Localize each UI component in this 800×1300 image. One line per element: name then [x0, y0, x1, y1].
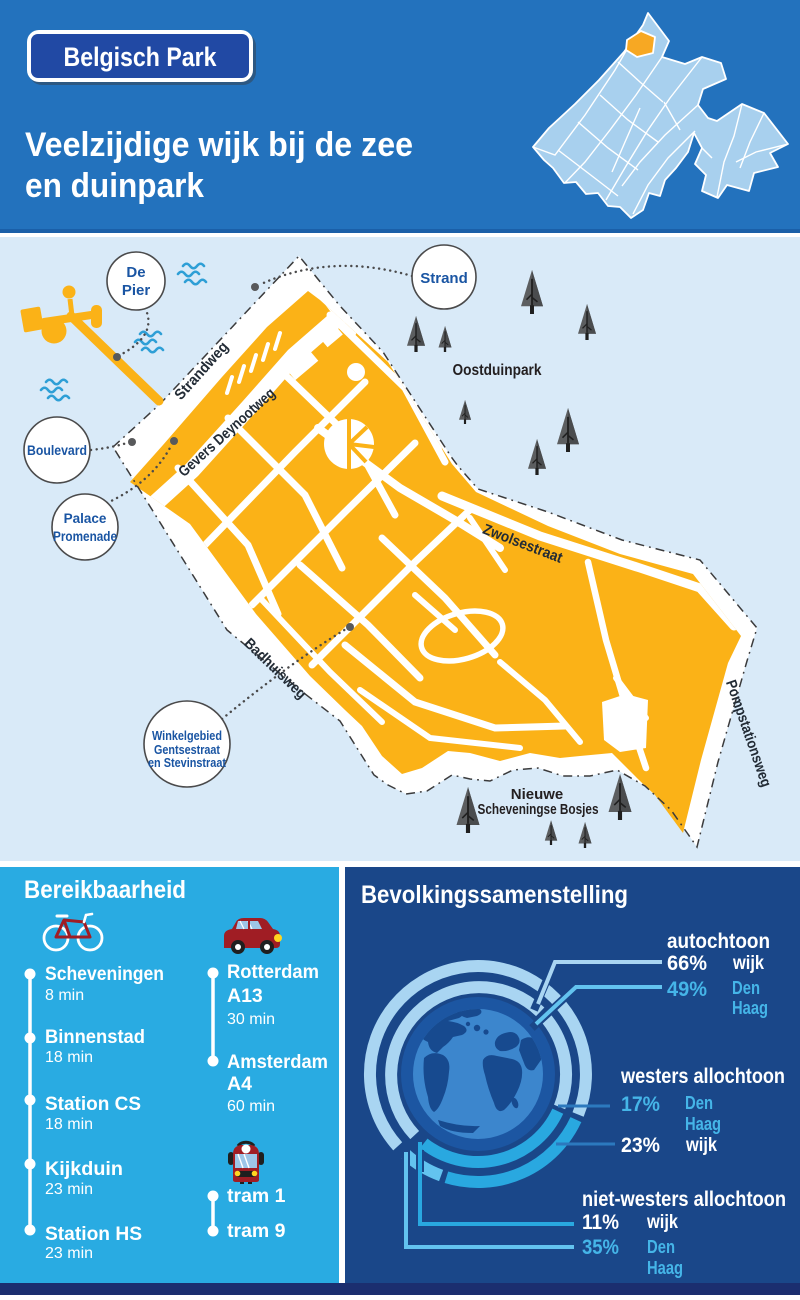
svg-text:17%: 17%: [621, 1093, 660, 1116]
svg-text:23%: 23%: [621, 1134, 660, 1157]
svg-text:westers allochtoon: westers allochtoon: [620, 1065, 785, 1088]
svg-text:23 min: 23 min: [45, 1245, 93, 1262]
svg-text:Palace: Palace: [64, 511, 107, 526]
svg-text:niet-westers allochtoon: niet-westers allochtoon: [582, 1188, 786, 1211]
svg-text:Station HS: Station HS: [45, 1223, 142, 1245]
svg-text:Den: Den: [732, 978, 760, 998]
svg-text:wijk: wijk: [646, 1212, 678, 1233]
svg-text:Rotterdam: Rotterdam: [227, 961, 319, 983]
svg-text:Haag: Haag: [685, 1114, 721, 1134]
svg-text:en Stevinstraat: en Stevinstraat: [148, 755, 227, 770]
svg-text:Bereikbaarheid: Bereikbaarheid: [24, 876, 186, 904]
svg-text:18 min: 18 min: [45, 1116, 93, 1133]
svg-text:A4: A4: [227, 1073, 252, 1095]
svg-text:49%: 49%: [667, 978, 707, 1001]
svg-text:wijk: wijk: [685, 1135, 717, 1156]
svg-text:Kijkduin: Kijkduin: [45, 1158, 123, 1180]
svg-text:60 min: 60 min: [227, 1098, 275, 1115]
svg-text:De: De: [126, 264, 145, 281]
svg-text:A13: A13: [227, 985, 263, 1007]
svg-text:Bevolkingssamenstelling: Bevolkingssamenstelling: [361, 881, 628, 909]
svg-text:Veelzijdige wijk bij de zee: Veelzijdige wijk bij de zee: [25, 126, 413, 164]
svg-text:Station CS: Station CS: [45, 1093, 141, 1115]
svg-text:wijk: wijk: [732, 953, 764, 974]
svg-text:Den: Den: [647, 1237, 675, 1257]
svg-text:Strand: Strand: [420, 270, 468, 287]
svg-text:30 min: 30 min: [227, 1011, 275, 1028]
svg-text:Amsterdam: Amsterdam: [227, 1051, 328, 1073]
svg-text:Belgisch Park: Belgisch Park: [64, 42, 218, 72]
svg-text:Scheveningse Bosjes: Scheveningse Bosjes: [478, 801, 599, 818]
svg-text:Scheveningen: Scheveningen: [45, 963, 164, 985]
svg-text:Den: Den: [685, 1093, 713, 1113]
svg-text:11%: 11%: [582, 1211, 619, 1234]
svg-text:autochtoon: autochtoon: [667, 930, 770, 953]
svg-text:Winkelgebied: Winkelgebied: [152, 728, 222, 743]
svg-text:Promenade: Promenade: [53, 529, 117, 544]
svg-text:66%: 66%: [667, 952, 707, 975]
svg-text:35%: 35%: [582, 1236, 619, 1259]
svg-text:Haag: Haag: [647, 1258, 683, 1278]
svg-text:23 min: 23 min: [45, 1181, 93, 1198]
svg-text:tram 9: tram 9: [227, 1220, 286, 1242]
svg-text:Pier: Pier: [122, 282, 151, 299]
svg-text:Boulevard: Boulevard: [27, 442, 87, 458]
svg-text:Haag: Haag: [732, 998, 768, 1018]
svg-text:Binnenstad: Binnenstad: [45, 1026, 145, 1048]
svg-text:8 min: 8 min: [45, 987, 84, 1004]
svg-text:tram 1: tram 1: [227, 1185, 286, 1207]
svg-text:en duinpark: en duinpark: [25, 167, 204, 205]
svg-text:Oostduinpark: Oostduinpark: [453, 362, 542, 379]
svg-text:18 min: 18 min: [45, 1049, 93, 1066]
